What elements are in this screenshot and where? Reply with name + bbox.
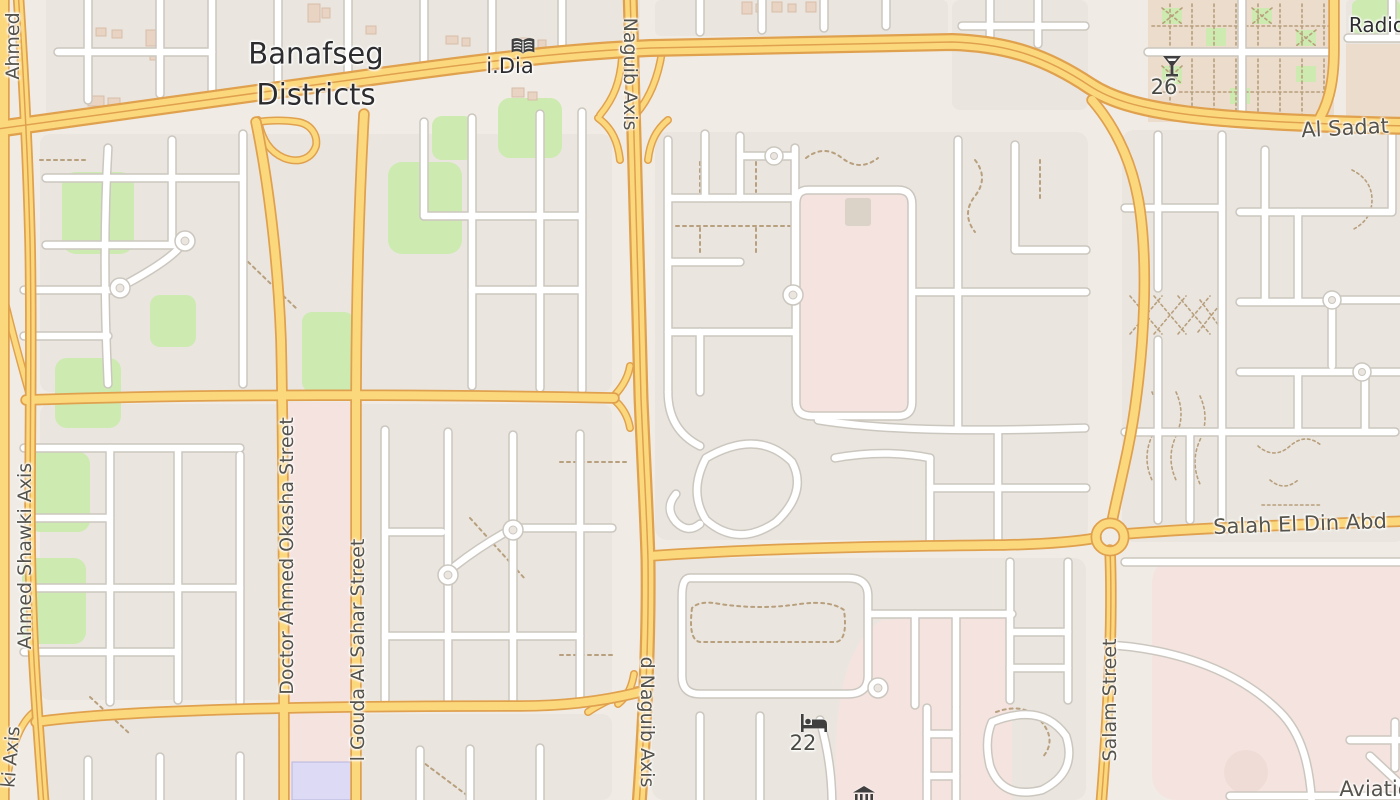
radio-label: Radio [1349,13,1400,37]
park-area [150,295,196,347]
map-canvas[interactable]: Banafseg Districts i.Dia 26 22 Radio Al … [0,0,1400,800]
district-label: Banafseg Districts [191,33,441,114]
lavender-building [292,762,354,800]
gouda-street-label: l Gouda Al Sahar Street [347,539,369,762]
map-tiles [0,0,1400,800]
hotel-housenumber: 22 [790,731,817,755]
parcels-area [1346,44,1400,124]
al-sadat-label: Al Sadat [1301,114,1390,143]
retail-strip [288,402,356,800]
park-area [498,98,562,158]
retail-area [1224,750,1268,794]
naguib-axis-top-label: Naguib Axis [619,18,641,131]
library-label: i.Dia [486,54,533,78]
okasha-street-label: Doctor Ahmed Okasha Street [276,417,298,695]
naguib-axis-bottom-label: d Naguib Axis [636,657,658,788]
ahmed-label: Ahmed [2,12,24,79]
retail-area [1152,558,1400,800]
bar-housenumber: 26 [1151,75,1178,99]
aviation-label: Aviatio [1339,777,1400,800]
ahmed-shawki-axis-label: Ahmed Shawki Axis [14,463,36,649]
park-area [302,312,354,392]
salam-street-label: Salam Street [1099,639,1121,762]
